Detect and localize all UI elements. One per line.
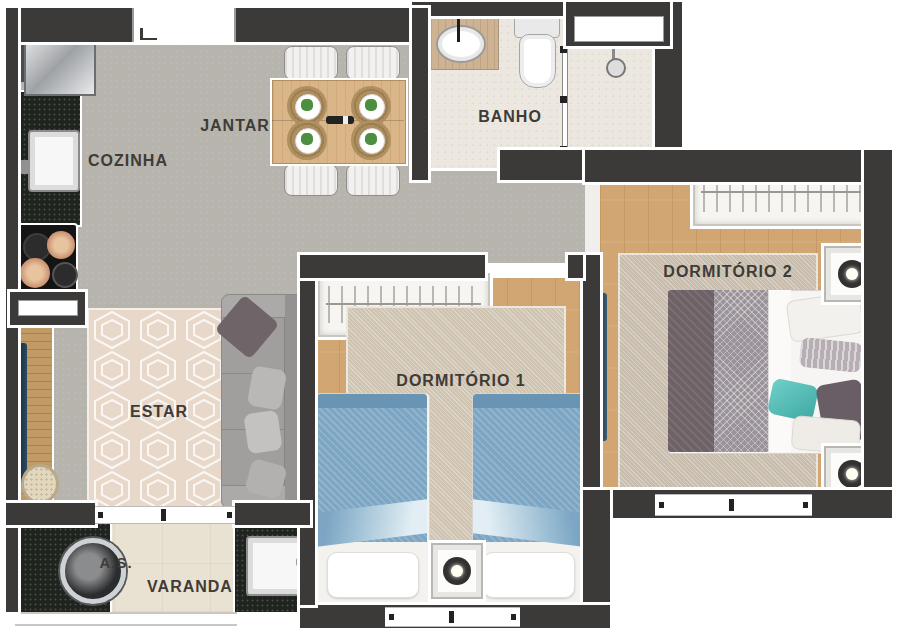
balcony-railing	[15, 612, 237, 626]
door-jamb	[234, 8, 236, 42]
pillow-patterned	[799, 337, 864, 373]
window-tick	[389, 614, 394, 620]
bedroom2-window	[655, 494, 812, 516]
placemat	[351, 120, 391, 160]
bed-duvet-roll	[473, 394, 583, 408]
laundry-sink	[246, 536, 304, 596]
closet-rod	[701, 191, 863, 193]
throw-pillow	[243, 410, 282, 454]
wall-right	[864, 150, 892, 518]
entry-opening	[132, 8, 236, 42]
partition-dot	[560, 46, 567, 53]
room-label-banho: BANHO	[478, 108, 542, 126]
plate	[295, 128, 321, 154]
table-lamp	[443, 557, 471, 585]
bathroom-sink	[436, 25, 486, 63]
salad	[365, 133, 377, 145]
room-label-estar: ESTAR	[130, 403, 188, 421]
room-label-as: A.S.	[99, 554, 132, 571]
plate	[359, 94, 385, 120]
double-bed-quilt	[714, 290, 768, 452]
partition-dot	[560, 96, 567, 103]
lamp-bulb	[846, 268, 858, 280]
dining-chair	[346, 164, 400, 196]
dining-chair	[346, 46, 400, 80]
bed-duvet-roll	[317, 394, 427, 408]
wall-living-bottom-right	[235, 503, 310, 525]
wall-between-bedrooms	[583, 255, 600, 500]
window-tick	[98, 512, 103, 518]
nightstand	[431, 543, 483, 599]
stove-burner	[52, 262, 78, 288]
window-tick	[729, 499, 734, 511]
wall-bedroom1-top	[300, 255, 485, 278]
floor-hallway	[412, 168, 598, 263]
kitchen-faucet	[20, 160, 30, 174]
tv	[18, 343, 27, 485]
lamp-bulb	[451, 565, 463, 577]
room-label-jantar: JANTAR	[200, 117, 270, 135]
room-label-dormitorio2: DORMITÓRIO 2	[663, 263, 792, 281]
copper-pan	[20, 258, 50, 288]
lamp-bulb	[846, 468, 858, 480]
single-bed	[316, 393, 430, 607]
wall-living-bottom-left	[6, 503, 95, 525]
wall-bedroom2-top	[585, 150, 892, 182]
throw-pillow	[247, 365, 287, 410]
double-bed-duvet	[668, 290, 714, 452]
wall-bathroom-left	[412, 8, 428, 180]
window-tick	[511, 614, 516, 620]
closet-rod	[326, 303, 481, 305]
salad	[301, 99, 313, 111]
salad	[365, 99, 377, 111]
room-label-dormitorio1: DORMITÓRIO 1	[396, 372, 525, 390]
room-label-varanda: VARANDA	[147, 578, 233, 596]
kitchen-sink	[28, 130, 80, 192]
table-lamp	[838, 260, 866, 288]
bathroom-faucet	[457, 18, 460, 42]
wine-bottle	[326, 116, 354, 124]
window-tick	[161, 509, 166, 521]
entry-door-leaf	[140, 28, 157, 40]
bed-pillow	[327, 552, 419, 598]
room-label-cozinha: COZINHA	[88, 152, 168, 170]
window-tick	[227, 512, 232, 518]
plate	[359, 128, 385, 154]
wall-bedroom1-top-stub	[568, 255, 583, 278]
dining-chair	[284, 164, 338, 196]
basket	[21, 464, 59, 504]
bedroom2-threshold	[585, 182, 600, 255]
door-jamb	[132, 8, 134, 42]
placemat	[287, 120, 327, 160]
copper-pan	[47, 231, 75, 259]
window-tick	[449, 611, 454, 623]
dining-chair	[284, 46, 338, 80]
balcony-sliding-door	[95, 506, 235, 524]
shower-head	[606, 58, 626, 78]
salad	[301, 133, 313, 145]
table-lamp	[838, 460, 866, 488]
bed-pillow	[483, 552, 575, 598]
washing-machine	[60, 538, 126, 604]
toilet-bowl	[519, 34, 556, 88]
wall-bedroom1-left	[300, 255, 315, 605]
bedroom1-window	[385, 607, 520, 627]
single-bed	[472, 393, 586, 607]
kitchen-niche-window	[18, 300, 78, 316]
floor-plan: COZINHA JANTAR BANHO ESTAR DORMITÓRIO 1 …	[0, 0, 900, 635]
plate	[295, 94, 321, 120]
bathroom-window	[574, 16, 664, 42]
window-tick	[803, 502, 808, 508]
window-tick	[659, 502, 664, 508]
